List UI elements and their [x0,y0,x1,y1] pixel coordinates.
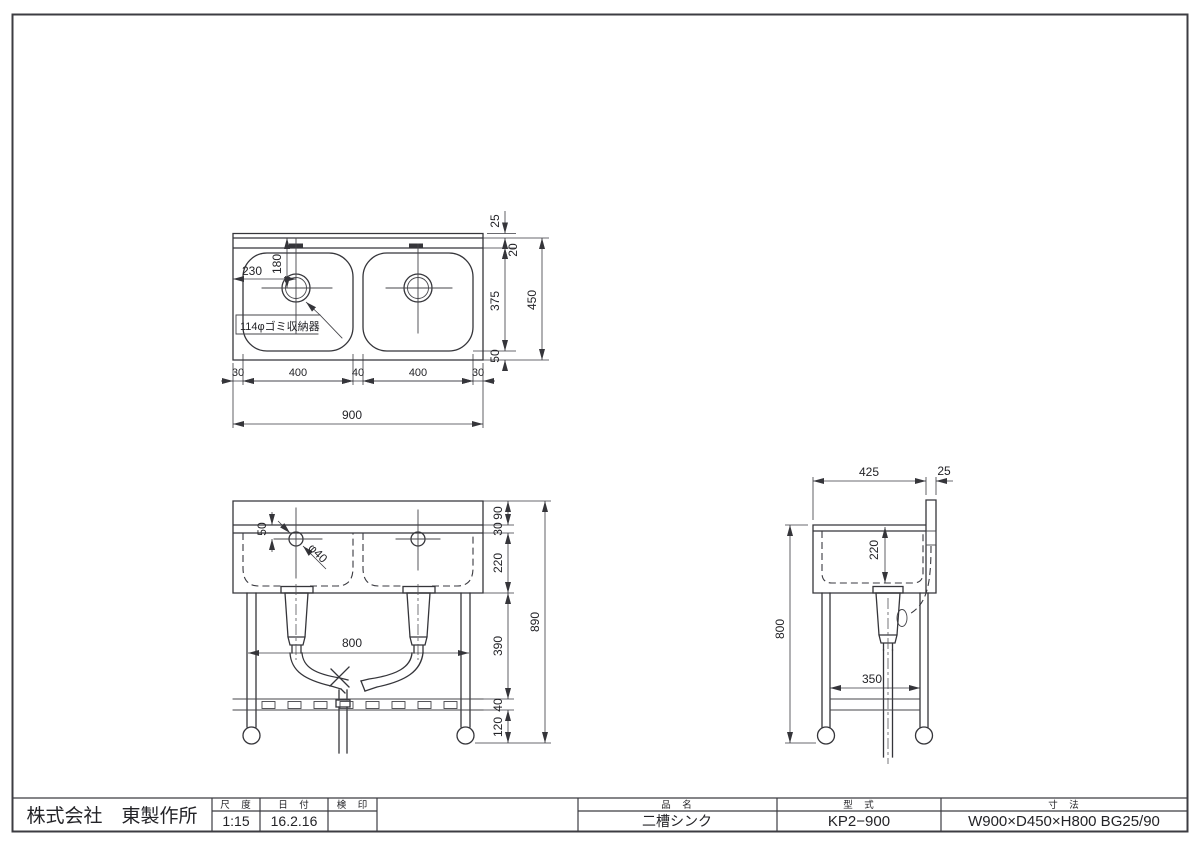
dim-label-40-front: 40 [491,698,505,712]
dim-label-30-right: 30 [472,367,484,379]
size-value: W900×D450×H800 BG25/90 [968,813,1160,830]
shelf-slats [262,702,457,709]
dim-label-phi40: φ40 [305,541,330,566]
dim-label-425: 425 [859,465,879,479]
dim-label-220-side: 220 [867,540,881,560]
note-garbage-container: 114φゴミ収納器 [240,319,320,333]
size-label: 寸 法 [1048,799,1080,811]
company-name: 株式会社 東製作所 [26,805,197,827]
dim-label-800-side: 800 [773,619,787,639]
dim-label-400-right: 400 [409,367,427,379]
date-label: 日 付 [278,800,310,811]
item-name-value: 二槽シンク [642,813,712,829]
dim-label-350: 350 [862,672,882,686]
dim-label-220-front: 220 [491,553,505,573]
dim-label-50-top: 50 [488,349,502,363]
dim-label-230: 230 [242,264,262,278]
dim-label-50-front: 50 [255,522,269,536]
dim-label-20: 20 [506,243,520,257]
sheet-border [13,15,1188,832]
dim-label-800-front: 800 [342,636,362,650]
dim-label-30-left: 30 [232,367,244,379]
dim-label-890: 890 [528,612,542,632]
dim-label-900: 900 [342,408,362,422]
dim-label-375: 375 [488,291,502,311]
top-view: 230 180 114φゴミ収納器 25 20 375 50 450 30 40… [221,211,549,428]
date-value: 16.2.16 [271,813,318,829]
side-view: 220 425 25 800 350 [773,464,953,764]
dim-label-40: 40 [352,367,364,379]
drawing-sheet: 230 180 114φゴミ収納器 25 20 375 50 450 30 40… [0,0,1200,849]
dim-label-400-left: 400 [289,367,307,379]
drawing-canvas: 230 180 114φゴミ収納器 25 20 375 50 450 30 40… [0,0,1200,849]
scale-value: 1:15 [222,813,249,829]
title-block: 株式会社 東製作所 尺 度 1:15 日 付 16.2.16 検 印 品 名 二… [12,798,1188,831]
dim-label-390: 390 [491,636,505,656]
dim-label-90: 90 [491,506,505,520]
model-label: 型 式 [843,799,875,811]
dim-label-120: 120 [491,717,505,737]
dim-label-25-side: 25 [937,464,951,478]
model-value: KP2−900 [828,813,890,830]
item-name-label: 品 名 [661,799,693,811]
dim-label-180: 180 [270,254,284,274]
dim-label-30-front: 30 [491,522,505,536]
dim-label-25-top: 25 [488,214,502,228]
dim-label-450: 450 [525,290,539,310]
front-view: φ40 50 800 [233,501,551,753]
scale-label: 尺 度 [220,799,252,811]
stamp-label: 検 印 [337,799,369,811]
